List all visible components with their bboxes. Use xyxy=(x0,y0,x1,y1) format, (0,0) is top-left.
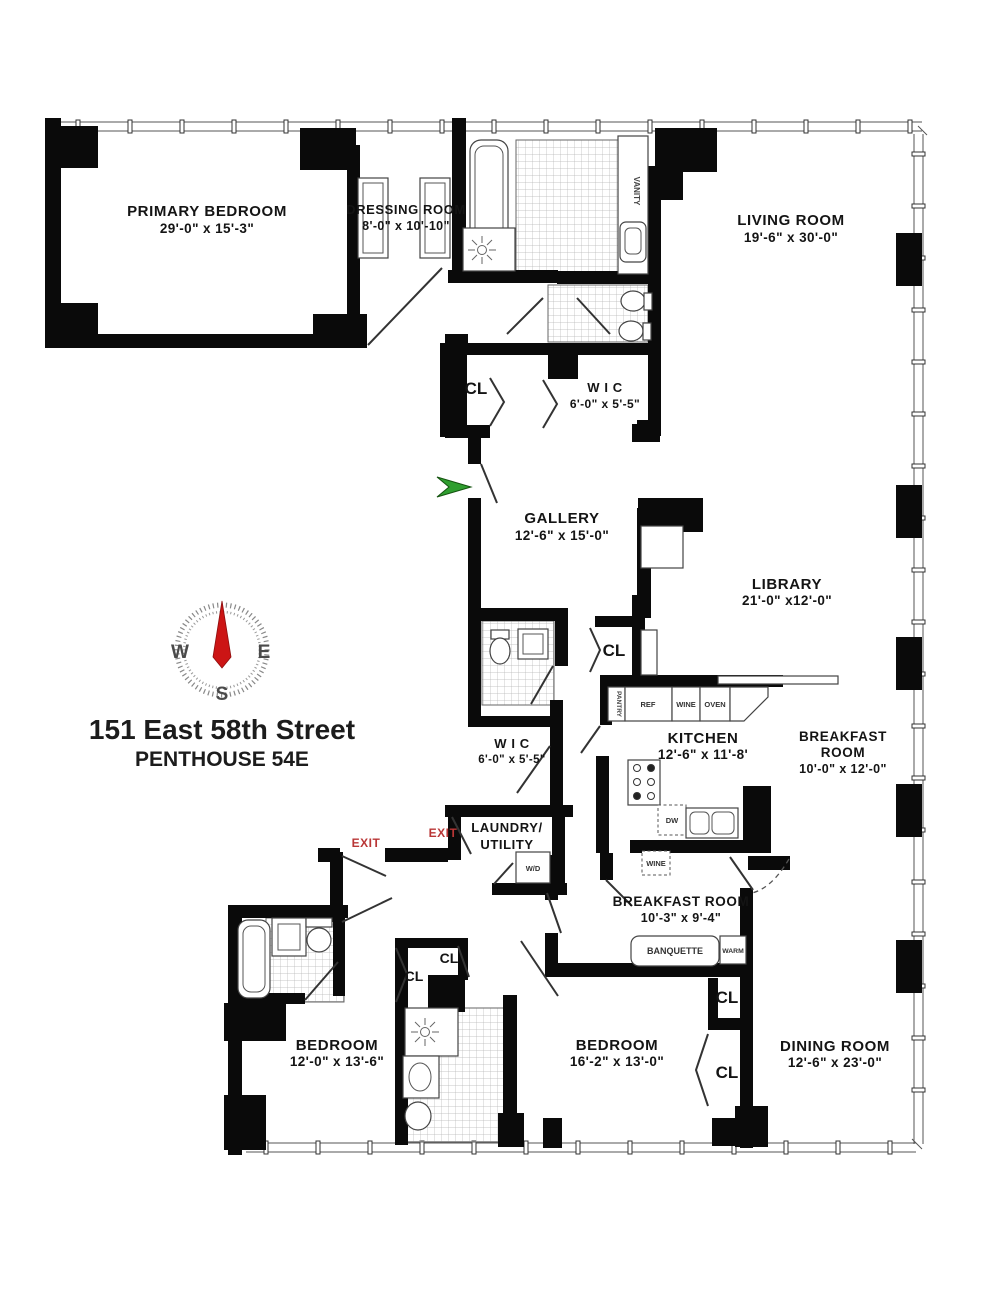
svg-text:12'-6" x 11'-8': 12'-6" x 11'-8' xyxy=(658,747,748,762)
room-label-dining-room: DINING ROOM xyxy=(780,1038,890,1055)
ref-label: REF xyxy=(641,700,656,709)
room-label-closet: CL xyxy=(716,988,739,1007)
warm-label: WARM xyxy=(722,948,744,955)
svg-text:16'-2" x 13'-0": 16'-2" x 13'-0" xyxy=(570,1054,664,1069)
room-label-living-room: LIVING ROOM xyxy=(737,212,844,229)
svg-text:12'-6" x 23'-0": 12'-6" x 23'-0" xyxy=(788,1055,882,1070)
address-title: 151 East 58th Street xyxy=(89,714,355,745)
vanity-label: VANITY xyxy=(632,177,641,206)
svg-text:12'-0" x 13'-6": 12'-0" x 13'-6" xyxy=(290,1054,384,1069)
svg-text:6'-0" x 5'-5": 6'-0" x 5'-5" xyxy=(570,397,640,411)
room-label-closet: CL xyxy=(405,968,424,984)
room-label-wic-upper: W I C xyxy=(587,380,623,395)
svg-text:19'-6" x 30'-0": 19'-6" x 30'-0" xyxy=(744,230,838,245)
svg-text:6'-0" x 5'-5": 6'-0" x 5'-5" xyxy=(478,754,546,766)
room-label-breakfast-east: BREAKFAST xyxy=(799,729,887,744)
room-label-breakfast-south: BREAKFAST ROOM xyxy=(613,894,750,909)
room-label-gallery: GALLERY xyxy=(524,510,599,527)
bookcase xyxy=(641,630,657,675)
window-wall-bottom xyxy=(246,1141,916,1154)
svg-text:8'-0" x 10'-10": 8'-0" x 10'-10" xyxy=(362,219,450,233)
exit-labels: EXIT EXIT xyxy=(352,826,458,850)
svg-text:ROOM: ROOM xyxy=(821,745,865,760)
entry-door xyxy=(481,464,497,503)
room-label-closet: CL xyxy=(716,1063,739,1082)
room-label-kitchen: KITCHEN xyxy=(668,730,739,747)
room-label-primary-bedroom: PRIMARY BEDROOM xyxy=(127,203,287,220)
svg-text:29'-0" x 15'-3": 29'-0" x 15'-3" xyxy=(160,221,254,236)
svg-text:12'-6" x 15'-0": 12'-6" x 15'-0" xyxy=(515,528,609,543)
oven-label: OVEN xyxy=(704,700,725,709)
room-label-closet: CL xyxy=(440,950,459,966)
toilet xyxy=(307,928,331,952)
sink xyxy=(403,1056,439,1098)
banquette-label: BANQUETTE xyxy=(647,946,703,956)
room-label-wic-lower: W I C xyxy=(494,736,530,751)
corner-cabinet xyxy=(730,687,768,721)
room-label-bedroom-west: BEDROOM xyxy=(296,1037,379,1054)
compass: W E S xyxy=(171,601,270,705)
room-label-closet: CL xyxy=(603,641,626,660)
room-label-closet: CL xyxy=(465,379,488,398)
compass-south: S xyxy=(216,684,229,705)
wine-cooler-label: WINE xyxy=(646,859,666,868)
exit-label: EXIT xyxy=(429,826,458,840)
svg-text:UTILITY: UTILITY xyxy=(480,837,533,852)
room-label-bedroom-center: BEDROOM xyxy=(576,1037,659,1054)
entrance-arrow-icon xyxy=(437,477,471,497)
toilet xyxy=(405,1102,431,1130)
svg-text:21'-0" x12'-0": 21'-0" x12'-0" xyxy=(742,593,832,608)
counter xyxy=(718,676,838,684)
bookcase xyxy=(641,526,683,568)
floor-plan-page: PRIMARY BEDROOM 29'-0" x 15'-3" DRESSING… xyxy=(0,0,1000,1294)
floor-plan-drawing: PRIMARY BEDROOM 29'-0" x 15'-3" DRESSING… xyxy=(0,0,1000,1294)
bidet xyxy=(619,321,643,341)
toilet xyxy=(490,638,510,664)
svg-text:10'-3" x 9'-4": 10'-3" x 9'-4" xyxy=(641,911,721,925)
exit-door xyxy=(342,856,386,876)
room-label-laundry: LAUNDRY/ xyxy=(471,820,542,835)
wd-label: W/D xyxy=(526,864,541,873)
compass-needle-icon xyxy=(213,601,231,668)
range xyxy=(628,760,660,805)
room-label-library: LIBRARY xyxy=(752,576,822,593)
exit-label: EXIT xyxy=(352,836,381,850)
unit-subtitle: PENTHOUSE 54E xyxy=(135,748,309,771)
wine-label: WINE xyxy=(676,700,696,709)
toilet xyxy=(621,291,645,311)
dw-label: DW xyxy=(666,816,679,825)
compass-east: E xyxy=(258,642,271,663)
window-wall-top xyxy=(58,120,922,133)
plan-title: 151 East 58th Street PENTHOUSE 54E xyxy=(89,714,355,771)
pantry-label: PANTRY xyxy=(615,691,622,718)
room-label-dressing-room: DRESSING ROOM xyxy=(346,202,466,217)
compass-west: W xyxy=(171,642,189,663)
svg-text:10'-0" x 12'-0": 10'-0" x 12'-0" xyxy=(799,762,887,776)
